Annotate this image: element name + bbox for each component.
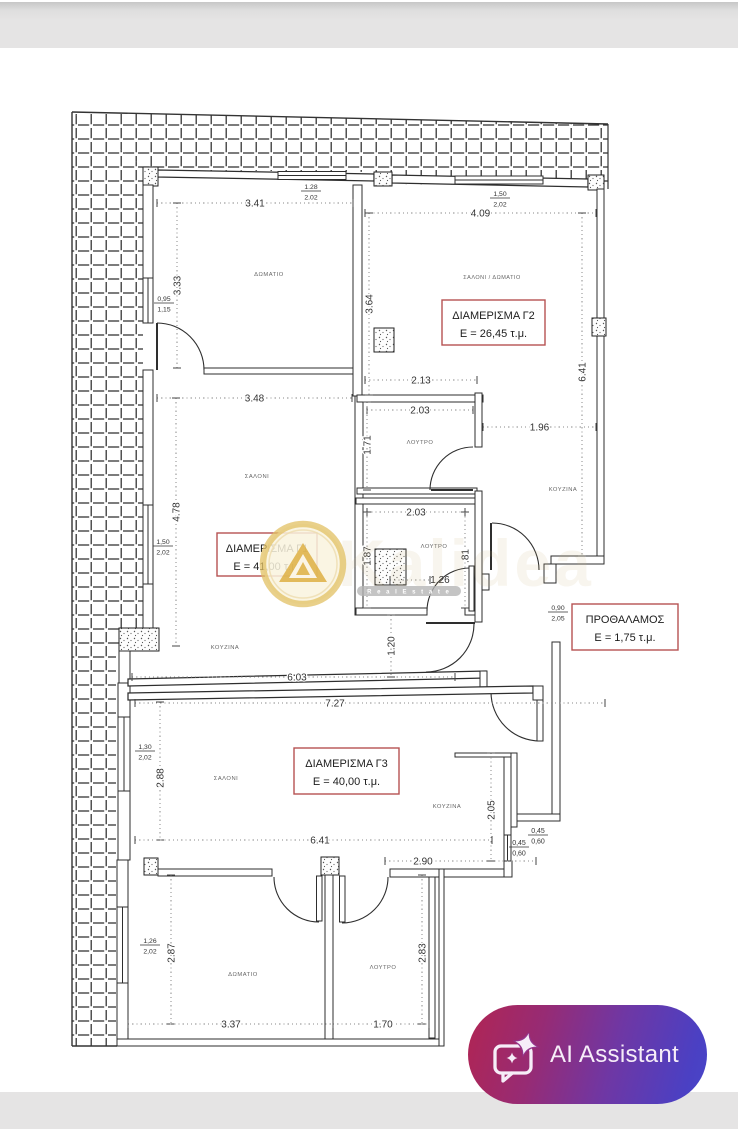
svg-text:2,02: 2,02 <box>493 202 506 209</box>
svg-text:7.27: 7.27 <box>325 699 345 710</box>
svg-text:0,45: 0,45 <box>531 828 545 835</box>
svg-text:2.05: 2.05 <box>487 800 498 820</box>
svg-text:2,02: 2,02 <box>156 550 169 557</box>
svg-text:3.64: 3.64 <box>365 294 376 314</box>
svg-text:ΣΑΛΟΝΙ: ΣΑΛΟΝΙ <box>245 474 270 480</box>
svg-text:E = 26,45 τ.μ.: E = 26,45 τ.μ. <box>460 328 527 340</box>
svg-text:2.03: 2.03 <box>410 406 430 417</box>
svg-text:1,26: 1,26 <box>143 938 156 945</box>
svg-text:ΛΟΥΤΡΟ: ΛΟΥΤΡΟ <box>407 440 434 446</box>
svg-text:0,60: 0,60 <box>512 851 526 858</box>
svg-text:1,30: 1,30 <box>138 744 151 751</box>
svg-text:3.48: 3.48 <box>245 394 265 405</box>
svg-text:ΔΩΜΑΤΙΟ: ΔΩΜΑΤΙΟ <box>254 272 284 278</box>
svg-text:2,02: 2,02 <box>138 755 151 762</box>
svg-text:E = 40,00 τ.μ.: E = 40,00 τ.μ. <box>313 776 380 788</box>
svg-text:1,15: 1,15 <box>157 307 170 314</box>
svg-text:1,50: 1,50 <box>156 539 169 546</box>
svg-text:1.96: 1.96 <box>530 423 550 434</box>
svg-text:6.41: 6.41 <box>578 362 589 382</box>
svg-text:ΚΟΥΖΙΝΑ: ΚΟΥΖΙΝΑ <box>549 487 578 493</box>
svg-text:3.33: 3.33 <box>173 275 184 295</box>
svg-text:ΚΟΥΖΙΝΑ: ΚΟΥΖΙΝΑ <box>211 645 240 651</box>
svg-text:2.02: 2.02 <box>304 195 317 202</box>
svg-text:2,05: 2,05 <box>551 616 564 623</box>
svg-text:3.41: 3.41 <box>245 199 265 210</box>
svg-text:2,02: 2,02 <box>143 949 156 956</box>
svg-text:ΔΙΑΜΕΡΙΣΜΑ Γ2: ΔΙΑΜΕΡΙΣΜΑ Γ2 <box>452 310 535 322</box>
svg-text:ΔΙΑΜΕΡΙΣΜΑ Γ3: ΔΙΑΜΕΡΙΣΜΑ Γ3 <box>305 758 388 770</box>
svg-text:0,60: 0,60 <box>531 839 545 846</box>
svg-text:E = 1,75 τ.μ.: E = 1,75 τ.μ. <box>594 632 655 644</box>
svg-text:0,45: 0,45 <box>512 840 526 847</box>
svg-text:ΣΑΛΟΝΙ / ΔΩΜΑΤΙΟ: ΣΑΛΟΝΙ / ΔΩΜΑΤΙΟ <box>463 275 521 281</box>
svg-text:4.09: 4.09 <box>471 209 491 220</box>
svg-text:3.37: 3.37 <box>221 1020 241 1031</box>
svg-text:6.41: 6.41 <box>310 836 330 847</box>
svg-text:2.90: 2.90 <box>413 857 433 868</box>
svg-text:0,90: 0,90 <box>551 605 564 612</box>
svg-text:2.88: 2.88 <box>156 768 167 788</box>
svg-text:4.78: 4.78 <box>172 502 183 522</box>
svg-text:1.70: 1.70 <box>373 1020 393 1031</box>
svg-text:1.28: 1.28 <box>304 184 317 191</box>
svg-text:ΣΑΛΟΝΙ: ΣΑΛΟΝΙ <box>214 776 239 782</box>
svg-text:ΚΟΥΖΙΝΑ: ΚΟΥΖΙΝΑ <box>433 804 462 810</box>
svg-text:R e a l E s t a t e: R e a l E s t a t e <box>367 590 451 596</box>
svg-text:2.13: 2.13 <box>411 376 431 387</box>
svg-text:ΠΡΟΘΑΛΑΜΟΣ: ΠΡΟΘΑΛΑΜΟΣ <box>586 614 665 626</box>
svg-text:1.71: 1.71 <box>363 435 374 455</box>
svg-text:2.03: 2.03 <box>406 508 426 519</box>
svg-text:ΛΟΥΤΡΟ: ΛΟΥΤΡΟ <box>370 965 397 971</box>
svg-text:ΔΩΜΑΤΙΟ: ΔΩΜΑΤΙΟ <box>228 972 258 978</box>
svg-text:6.03: 6.03 <box>287 673 307 684</box>
svg-text:2.83: 2.83 <box>418 943 429 963</box>
svg-text:1,50: 1,50 <box>493 191 506 198</box>
svg-text:1.20: 1.20 <box>387 636 398 656</box>
svg-text:2.87: 2.87 <box>167 943 178 963</box>
svg-text:0,95: 0,95 <box>157 296 170 303</box>
